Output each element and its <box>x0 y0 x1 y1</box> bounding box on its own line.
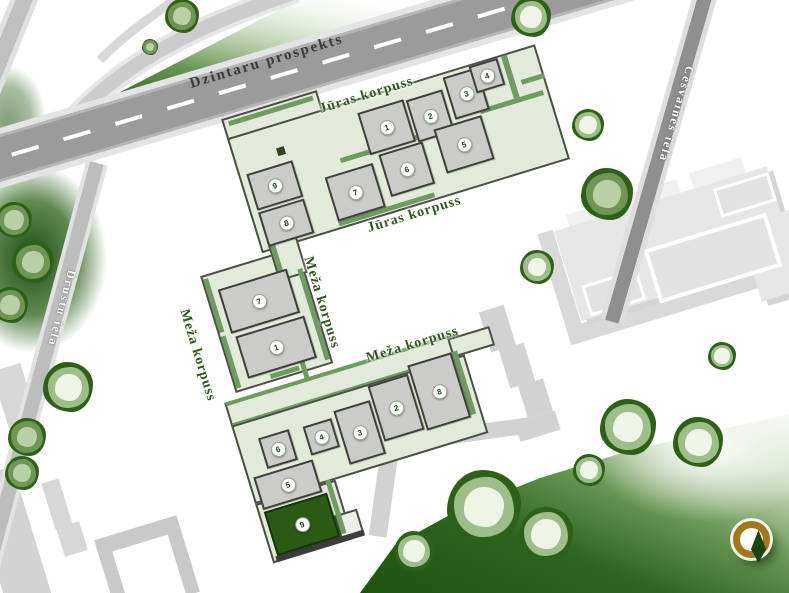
room-number: 6 <box>397 160 416 179</box>
tree <box>447 470 521 544</box>
room-number: 5 <box>455 135 474 154</box>
tree <box>708 342 736 370</box>
tree <box>572 109 604 141</box>
tree <box>573 454 605 486</box>
room-number: 7 <box>346 183 365 202</box>
tree <box>394 531 434 571</box>
tree <box>8 418 46 456</box>
tree <box>0 202 32 238</box>
room-number: 2 <box>421 107 440 126</box>
tree <box>43 362 93 412</box>
room-number: 2 <box>387 398 406 417</box>
tree <box>142 39 158 55</box>
room-number: 3 <box>350 423 369 442</box>
tree <box>581 168 633 220</box>
room-number: 6 <box>269 440 288 459</box>
room-number: 8 <box>430 382 449 401</box>
room-number: 9 <box>265 176 284 195</box>
site-map: Cēsvaines iela Drustu iela Dzintaru pros… <box>0 0 789 593</box>
room-number: 1 <box>267 338 286 357</box>
tree <box>520 250 554 284</box>
tree <box>600 399 656 455</box>
room-number: 3 <box>457 84 476 103</box>
tree <box>511 0 551 37</box>
compass-north-icon <box>733 521 770 558</box>
tree <box>0 287 28 323</box>
room-number: 9 <box>293 515 312 534</box>
tree <box>165 0 199 33</box>
room-number: 5 <box>279 475 298 494</box>
room-number: 4 <box>312 428 331 447</box>
room-number: 1 <box>377 118 396 137</box>
room-number: 8 <box>277 213 296 232</box>
tree <box>673 417 723 467</box>
room-number: 7 <box>250 292 269 311</box>
tree <box>12 241 54 283</box>
room-number: 4 <box>478 66 497 85</box>
tree <box>5 456 39 490</box>
tree <box>519 507 573 561</box>
